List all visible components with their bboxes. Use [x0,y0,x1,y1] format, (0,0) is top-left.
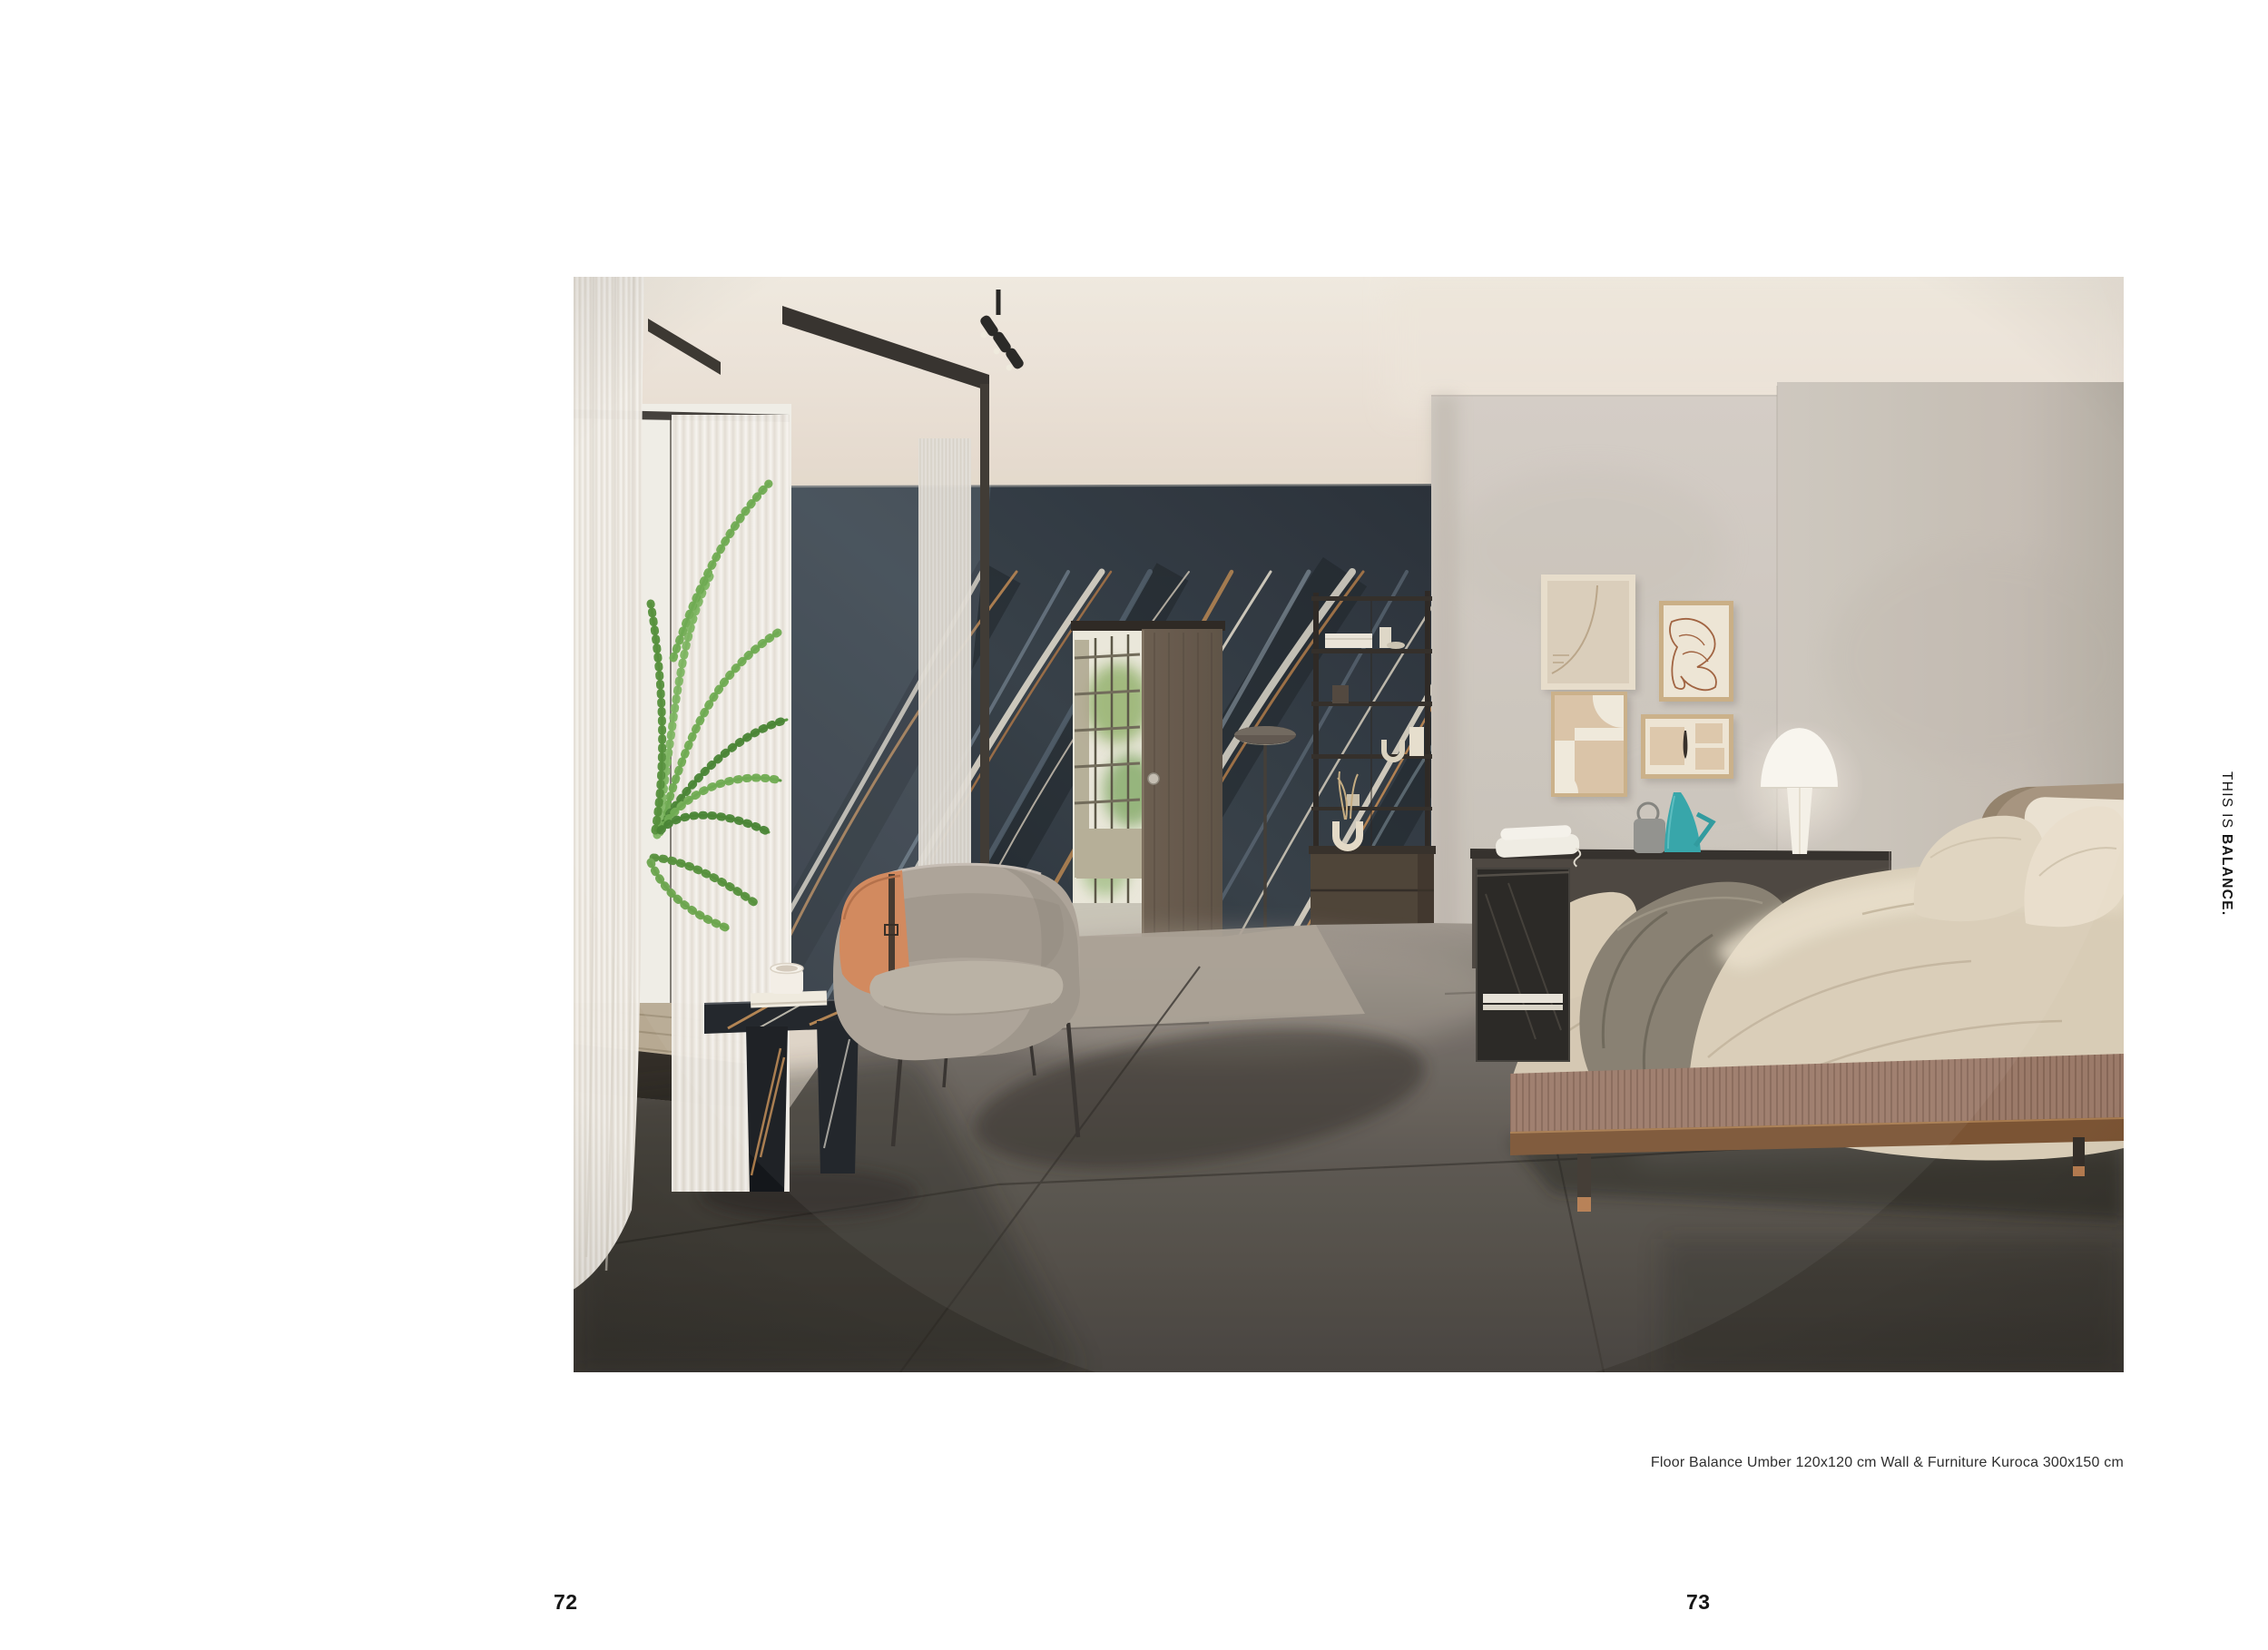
side-tagline-regular: THIS IS [2219,771,2234,834]
page-number-right: 73 [1686,1590,1710,1615]
catalog-spread: Floor Balance Umber 120x120 cm Wall & Fu… [0,0,2268,1650]
page-number-left: 72 [554,1590,577,1615]
room-photo [574,277,2124,1372]
photo-caption: Floor Balance Umber 120x120 cm Wall & Fu… [1651,1453,2124,1473]
side-tagline: THIS IS BALANCE. [2218,771,2234,916]
side-tagline-bold: BALANCE. [2219,834,2234,916]
room-photo-illustration [574,277,2124,1372]
vignette [574,277,2124,1372]
